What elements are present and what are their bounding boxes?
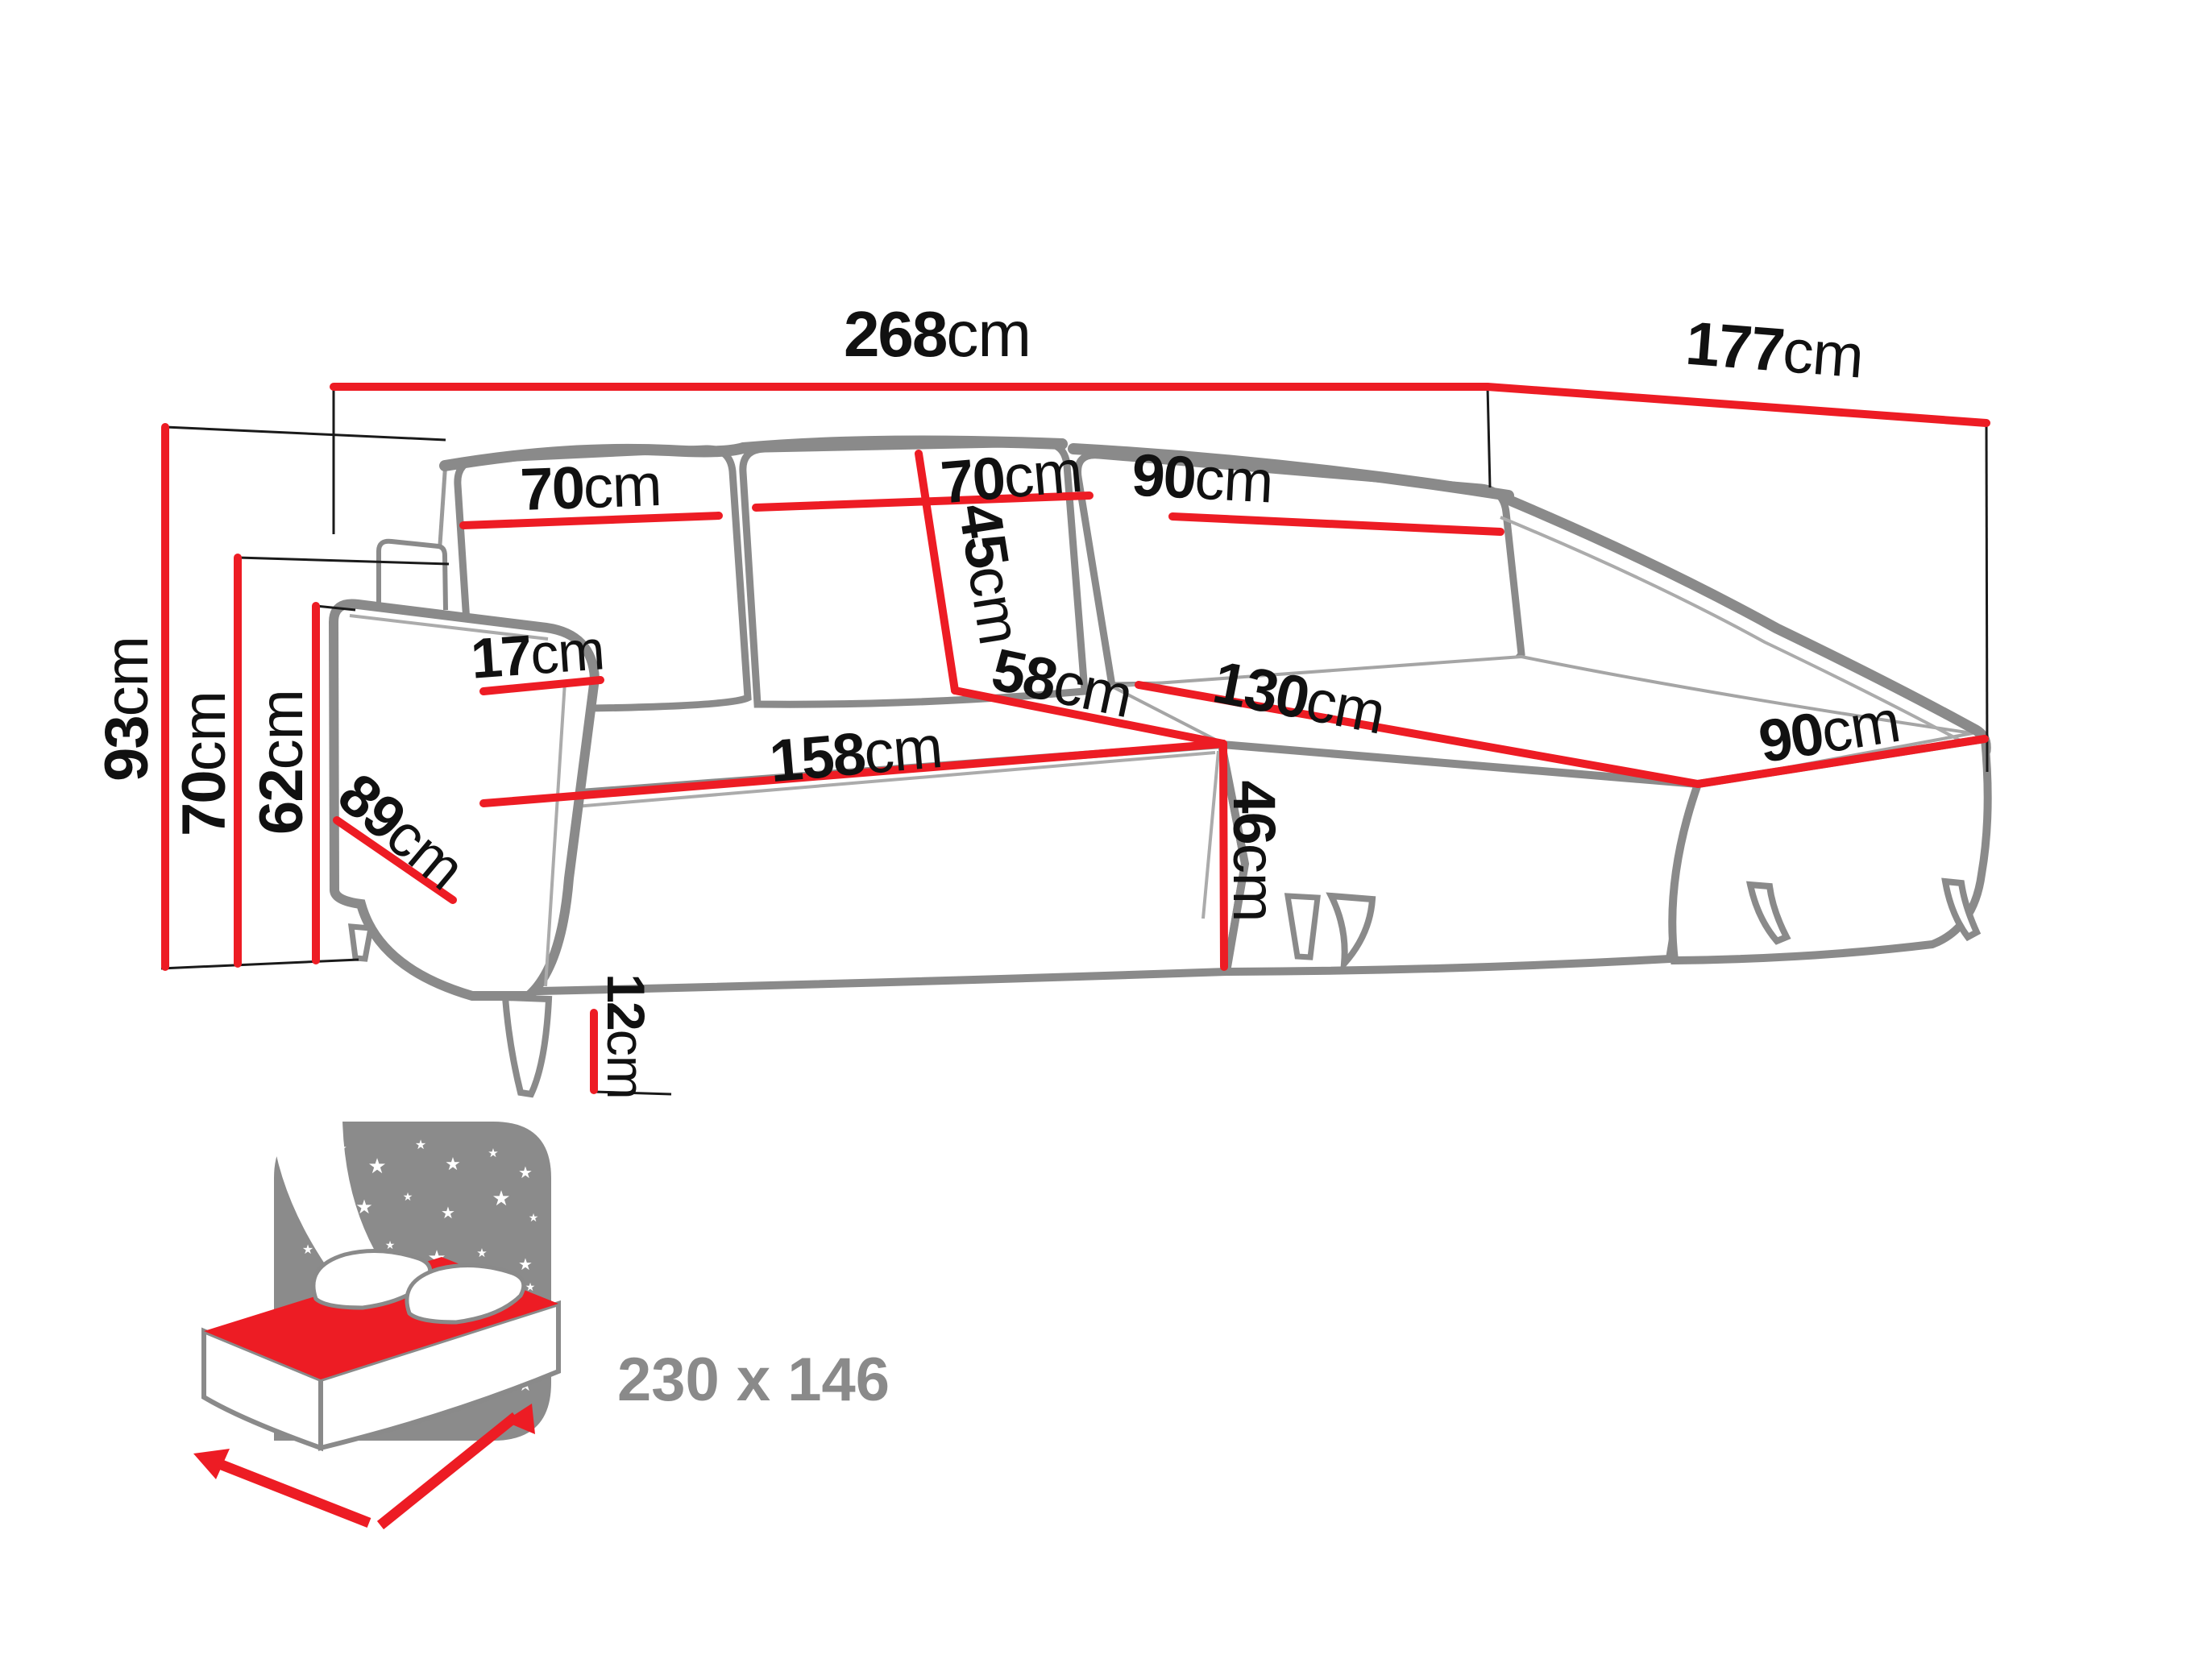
diagram-canvas: 268cm 177cm 93cm 70cm 62cm 70cm 70cm 90c… — [0, 0, 2212, 1659]
tick-total-width-right — [1488, 387, 1490, 487]
label-cushion-left-width: 70cm — [519, 451, 662, 523]
label-armrest-width: 17cm — [469, 618, 606, 690]
svg-text:★: ★ — [302, 1242, 313, 1257]
label-armrest-height: 62cm — [247, 690, 316, 835]
svg-text:★: ★ — [403, 1191, 413, 1204]
unfold-arrow-left-shaft — [218, 1463, 369, 1523]
leg-front-left — [505, 997, 549, 1094]
label-leg-height: 12cm — [596, 973, 656, 1098]
sofa-dimension-diagram: 268cm 177cm 93cm 70cm 62cm 70cm 70cm 90c… — [0, 0, 2212, 1659]
sleeping-area-dimensions: 230 x 146 — [617, 1346, 890, 1414]
label-total-width: 268cm — [844, 298, 1031, 370]
bed-night-icon: ★★ ★★ ★★ ★★ ★★ ★★ ★★ ★★ ★★ ★★ ★★ ★★ ★★ 2… — [193, 1120, 890, 1525]
svg-text:★: ★ — [529, 1212, 539, 1225]
label-seat-height: 46cm — [1221, 781, 1288, 922]
svg-text:★: ★ — [445, 1155, 461, 1175]
armrest-back-step — [379, 541, 446, 610]
svg-text:★: ★ — [518, 1255, 533, 1274]
connector-total-height — [165, 427, 446, 440]
dim-line-total-depth — [1488, 387, 1986, 423]
floor-line-left — [161, 960, 359, 968]
svg-text:★: ★ — [415, 1137, 426, 1152]
tick-total-depth-right — [1986, 423, 1987, 772]
label-backrest-height: 70cm — [170, 691, 239, 836]
svg-text:★: ★ — [492, 1187, 510, 1211]
leg-back-left — [351, 927, 371, 959]
svg-text:★: ★ — [476, 1246, 487, 1260]
label-total-height: 93cm — [93, 637, 161, 782]
svg-text:★: ★ — [441, 1203, 455, 1222]
sofa-illustration — [334, 441, 1988, 1094]
label-total-depth: 177cm — [1683, 309, 1865, 392]
label-cushion-corner-width: 90cm — [1130, 441, 1274, 515]
svg-text:★: ★ — [367, 1155, 386, 1179]
svg-text:★: ★ — [488, 1146, 498, 1160]
svg-text:★: ★ — [518, 1163, 533, 1182]
